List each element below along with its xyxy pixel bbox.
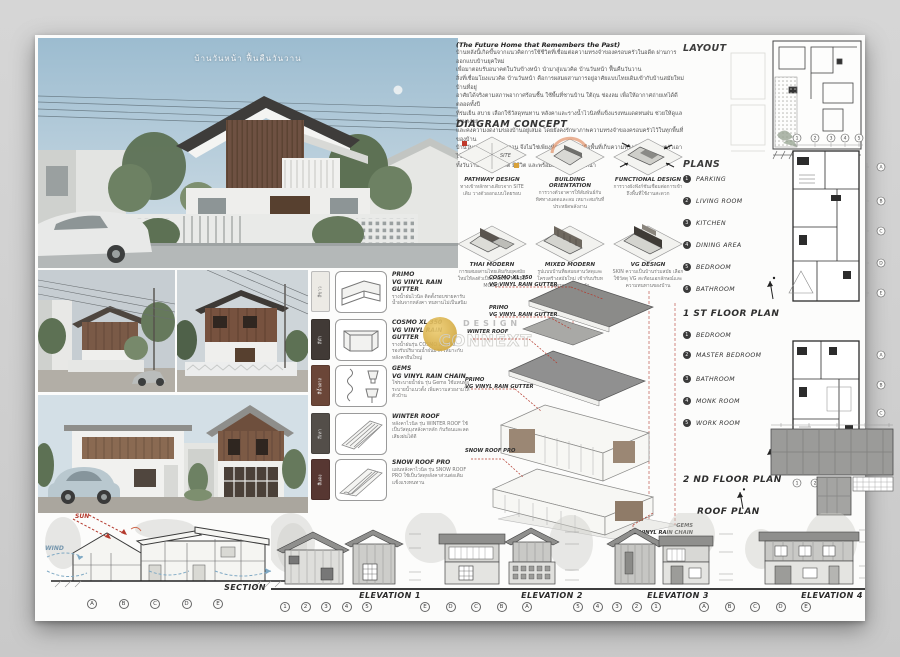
roof-sheet-icon xyxy=(335,413,387,455)
grid-bubble: 3 xyxy=(321,602,331,612)
roof-panel-icon xyxy=(335,459,387,501)
elevation2-label: ELEVATION 2 xyxy=(507,591,597,600)
intro-line: เพื่อมาตอบรับอนาคตในวันข้างหน้า นำมาสู่แ… xyxy=(456,66,684,75)
elevation1-label: ELEVATION 1 xyxy=(345,591,435,600)
grid-bubble: C xyxy=(150,599,160,609)
diagram-building-orientation: BUILDING ORIENTATION การวางตัวอาคารให้สั… xyxy=(534,133,606,212)
grid-bubble: E xyxy=(213,599,223,609)
legend-bathroom-1: 6BATHROOM xyxy=(683,285,735,293)
grid-bubble: 4 xyxy=(593,602,603,612)
svg-text:5: 5 xyxy=(858,136,861,142)
street-render-2-image xyxy=(177,270,308,392)
grid-bubble: D xyxy=(776,602,786,612)
box-gutter-icon xyxy=(335,319,387,361)
grid-bubble: D xyxy=(446,602,456,612)
plans-title: PLANS xyxy=(683,159,720,170)
floor1-plan-label: 1 ST FLOOR PLAN xyxy=(683,309,779,319)
diagram-caption: ทางเข้าหลักทางเดียวจาก SITE เดิม วางตัวอ… xyxy=(456,185,528,199)
grid-bubble: C xyxy=(471,602,481,612)
diagram-name: THAI MODERN xyxy=(456,262,528,268)
svg-text:SITE: SITE xyxy=(500,153,512,159)
grid-bubble: 2 xyxy=(301,602,311,612)
svg-text:D: D xyxy=(879,261,883,267)
diagram-functional-design: FUNCTIONAL DESIGN การวางผังฟังก์ชันเชื่อ… xyxy=(612,133,684,212)
callout-snow-roof: SNOW ROOF PRO xyxy=(465,448,545,455)
north-arrow-icon xyxy=(765,275,779,301)
street-render-1-image xyxy=(38,270,175,392)
grid-bubble: 5 xyxy=(573,602,583,612)
sun-label: SUN xyxy=(75,513,89,520)
elevation1-drawing xyxy=(275,522,425,592)
wind-label: WIND xyxy=(45,545,64,552)
elevation2-drawing xyxy=(433,522,583,592)
svg-text:3: 3 xyxy=(830,136,833,142)
legend-bedroom-1: 5BEDROOM xyxy=(683,263,731,271)
legend-work-room: 5WORK ROOM xyxy=(683,419,740,427)
color-swatch: สีน้ำตาล xyxy=(311,365,330,406)
grid-bubble: 5 xyxy=(362,602,372,612)
diagram-concept-title: DIAGRAM CONCEPT xyxy=(456,119,567,130)
svg-text:E: E xyxy=(880,291,883,297)
svg-text:2: 2 xyxy=(814,136,817,142)
legend-dining-area: 4DINING AREA xyxy=(683,241,742,249)
callout-primo-top: PRIMOVG VINYL RAIN GUTTER xyxy=(489,305,579,319)
intro-line: สิ่งที่เชื่อมโยงแนวคิด บ้านวันหน้า คือกา… xyxy=(456,75,684,92)
diagram-pathway-design: SITE PATHWAY DESIGN ทางเข้าหลักทางเดียวจ… xyxy=(456,133,528,212)
grid-bubble: B xyxy=(725,602,735,612)
functional-diagram-icon xyxy=(612,133,684,177)
intro-line: อาศัยได้จริงตามสภาพอากาศร้อนชื้น ใช้พื้น… xyxy=(456,92,684,109)
grid-bubble: A xyxy=(699,602,709,612)
intro-heading: (The Future Home that Remembers the Past… xyxy=(456,41,684,49)
render-title: บ้านวันหน้า ฟื้นคืนวันวาน xyxy=(38,52,458,65)
floor1-plan-drawing: 12 34 5 AB CD E xyxy=(787,131,899,327)
legend-kitchen: 3KITCHEN xyxy=(683,219,726,227)
legend-master-bedroom: 2MASTER BEDROOM xyxy=(683,351,769,359)
diagram-name: VG DESIGN xyxy=(612,262,684,268)
grid-bubble: B xyxy=(497,602,507,612)
legend-living-room: 2LIVING ROOM xyxy=(683,197,743,205)
roof-plan-drawing xyxy=(733,421,899,519)
diagram-name: MIXED MODERN xyxy=(534,262,606,268)
pathway-diagram-icon: SITE xyxy=(456,133,528,177)
main-render-image: บ้านวันหน้า ฟื้นคืนวันวาน xyxy=(38,38,458,268)
color-swatch: สีเทา xyxy=(311,413,330,454)
diagram-caption: การวางผังฟังก์ชันเชื่อมต่อการเข้าถึงพื้น… xyxy=(612,185,684,199)
diagram-concept-grid: SITE PATHWAY DESIGN ทางเข้าหลักทางเดียวจ… xyxy=(456,133,684,291)
elevation2-grid-bubbles: E D C B A xyxy=(420,602,532,612)
svg-text:C: C xyxy=(879,411,882,417)
svg-text:B: B xyxy=(879,199,882,205)
grid-bubble: 3 xyxy=(612,602,622,612)
material-item-gems: สีน้ำตาล GEMS VG VINYL RAIN CHAIN โซ่ระบ… xyxy=(311,365,470,407)
elevation3-label: ELEVATION 3 xyxy=(633,591,723,600)
callout-primo-mid: PRIMOVG VINYL RAIN GUTTER xyxy=(465,377,555,391)
grid-bubble: E xyxy=(801,602,811,612)
material-item-snow-roof: สีแดง SNOW ROOF PRO แผ่นหลังคาไวนิล รุ่น… xyxy=(311,459,470,501)
svg-text:B: B xyxy=(879,383,882,389)
elevation3-drawing xyxy=(587,522,737,592)
elevation4-drawing xyxy=(741,522,867,592)
orientation-diagram-icon xyxy=(534,133,606,177)
color-swatch: สีแดง xyxy=(311,459,330,500)
grid-bubble: 1 xyxy=(280,602,290,612)
elevation4-label: ELEVATION 4 xyxy=(787,591,877,600)
layout-title: LAYOUT xyxy=(683,43,727,54)
legend-monk-room: 4MONK ROOM xyxy=(683,397,740,405)
diagram-caption: การวางตัวอาคารให้สัมพันธ์กับทิศทางแดดและ… xyxy=(534,191,606,212)
intro-line: บ้านหลังนี้เกิดขึ้นจากแนวคิดการใช้ชีวิตท… xyxy=(456,49,684,66)
grid-bubble: A xyxy=(87,599,97,609)
legend-bathroom-2: 3BATHROOM xyxy=(683,375,735,383)
mixed-modern-icon xyxy=(534,218,606,262)
legend-bedroom-2: 1BEDROOM xyxy=(683,331,731,339)
legend-parking: 1PARKING xyxy=(683,175,726,183)
diagram-name: BUILDING ORIENTATION xyxy=(534,177,606,189)
grid-bubble: C xyxy=(750,602,760,612)
material-item-winter-roof: สีเทา WINTER ROOF หลังคาไวนิล รุ่น WINTE… xyxy=(311,413,470,455)
rain-chain-icon xyxy=(335,365,387,407)
exploded-axon-drawing: COSMO XL 350VG VINYL RAIN GUTTER PRIMOVG… xyxy=(453,273,697,541)
main-render-scene xyxy=(38,38,458,268)
elevation-render-image xyxy=(38,395,308,513)
material-item-primo: สีขาว PRIMO VG VINYL RAIN GUTTER รางน้ำฝ… xyxy=(311,271,470,313)
elevation4-grid-bubbles: A B C D E xyxy=(699,602,811,612)
color-swatch: สีดำ xyxy=(311,319,330,360)
grid-bubble: D xyxy=(182,599,192,609)
rain-gutter-icon xyxy=(335,271,387,313)
elevation3-grid-bubbles: 5 4 3 2 1 xyxy=(573,602,661,612)
diagram-name: PATHWAY DESIGN xyxy=(456,177,528,183)
elevation-ground-line xyxy=(271,588,865,590)
thai-modern-icon xyxy=(456,218,528,262)
callout-cosmo: COSMO XL 350VG VINYL RAIN GUTTER xyxy=(489,275,579,289)
callout-winter-roof: WINTER ROOF xyxy=(467,329,547,336)
grid-bubble: B xyxy=(119,599,129,609)
grid-bubble: 1 xyxy=(651,602,661,612)
section-grid-bubbles: A B C D E xyxy=(87,599,223,609)
svg-text:4: 4 xyxy=(844,136,847,142)
grid-bubble: 4 xyxy=(342,602,352,612)
presentation-board: บ้านวันหน้า ฟื้นคืนวันวาน xyxy=(35,35,865,621)
svg-text:1: 1 xyxy=(796,136,799,142)
color-swatch: สีขาว xyxy=(311,271,330,312)
grid-bubble: A xyxy=(522,602,532,612)
elevation1-grid-bubbles: 1 2 3 4 5 xyxy=(280,602,372,612)
grid-bubble: 2 xyxy=(632,602,642,612)
svg-text:C: C xyxy=(879,229,882,235)
grid-bubble: E xyxy=(420,602,430,612)
vg-design-icon xyxy=(612,218,684,262)
diagram-name: FUNCTIONAL DESIGN xyxy=(612,177,684,183)
